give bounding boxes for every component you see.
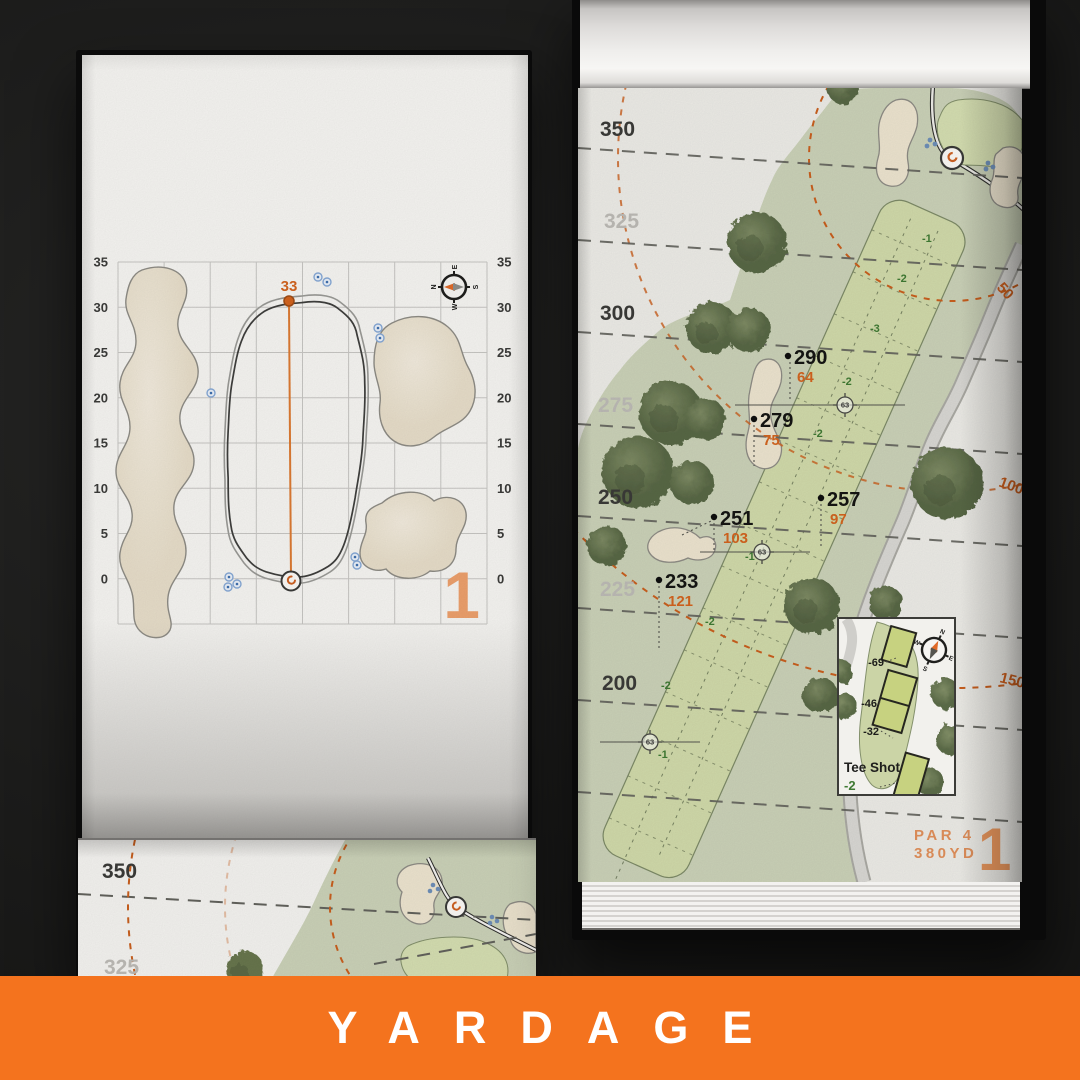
bottom-partial-page: 350 325 xyxy=(78,838,536,982)
hole-map: 63 63 63 xyxy=(578,88,1022,882)
yardage-book-mockup: 33 xyxy=(0,0,1080,1080)
page-number: 1 xyxy=(978,816,1011,882)
banner-title: YARDAGE xyxy=(294,1002,787,1054)
yardage-banner: YARDAGE xyxy=(0,976,1080,1080)
yardage-total-label: 380YD xyxy=(914,845,977,862)
inset-title: Tee Shot xyxy=(844,760,901,775)
inset-elevation: -2 xyxy=(844,778,856,793)
svg-text:-46: -46 xyxy=(861,698,877,710)
bottom-partial-map: 350 325 xyxy=(78,840,536,982)
green-detail-page: 33 xyxy=(82,55,528,840)
hole-map-page: 63 63 63 xyxy=(578,88,1022,882)
page-stack-edge xyxy=(582,882,1020,930)
svg-text:-69: -69 xyxy=(868,657,884,669)
flipped-page-curl xyxy=(580,0,1030,89)
green-detail-map: 33 xyxy=(82,55,528,840)
svg-text:-32: -32 xyxy=(863,726,879,738)
par-label: PAR 4 xyxy=(914,827,975,844)
tee-shot-inset: -69 -46 -32 Tee Shot -2 N xyxy=(827,618,968,803)
